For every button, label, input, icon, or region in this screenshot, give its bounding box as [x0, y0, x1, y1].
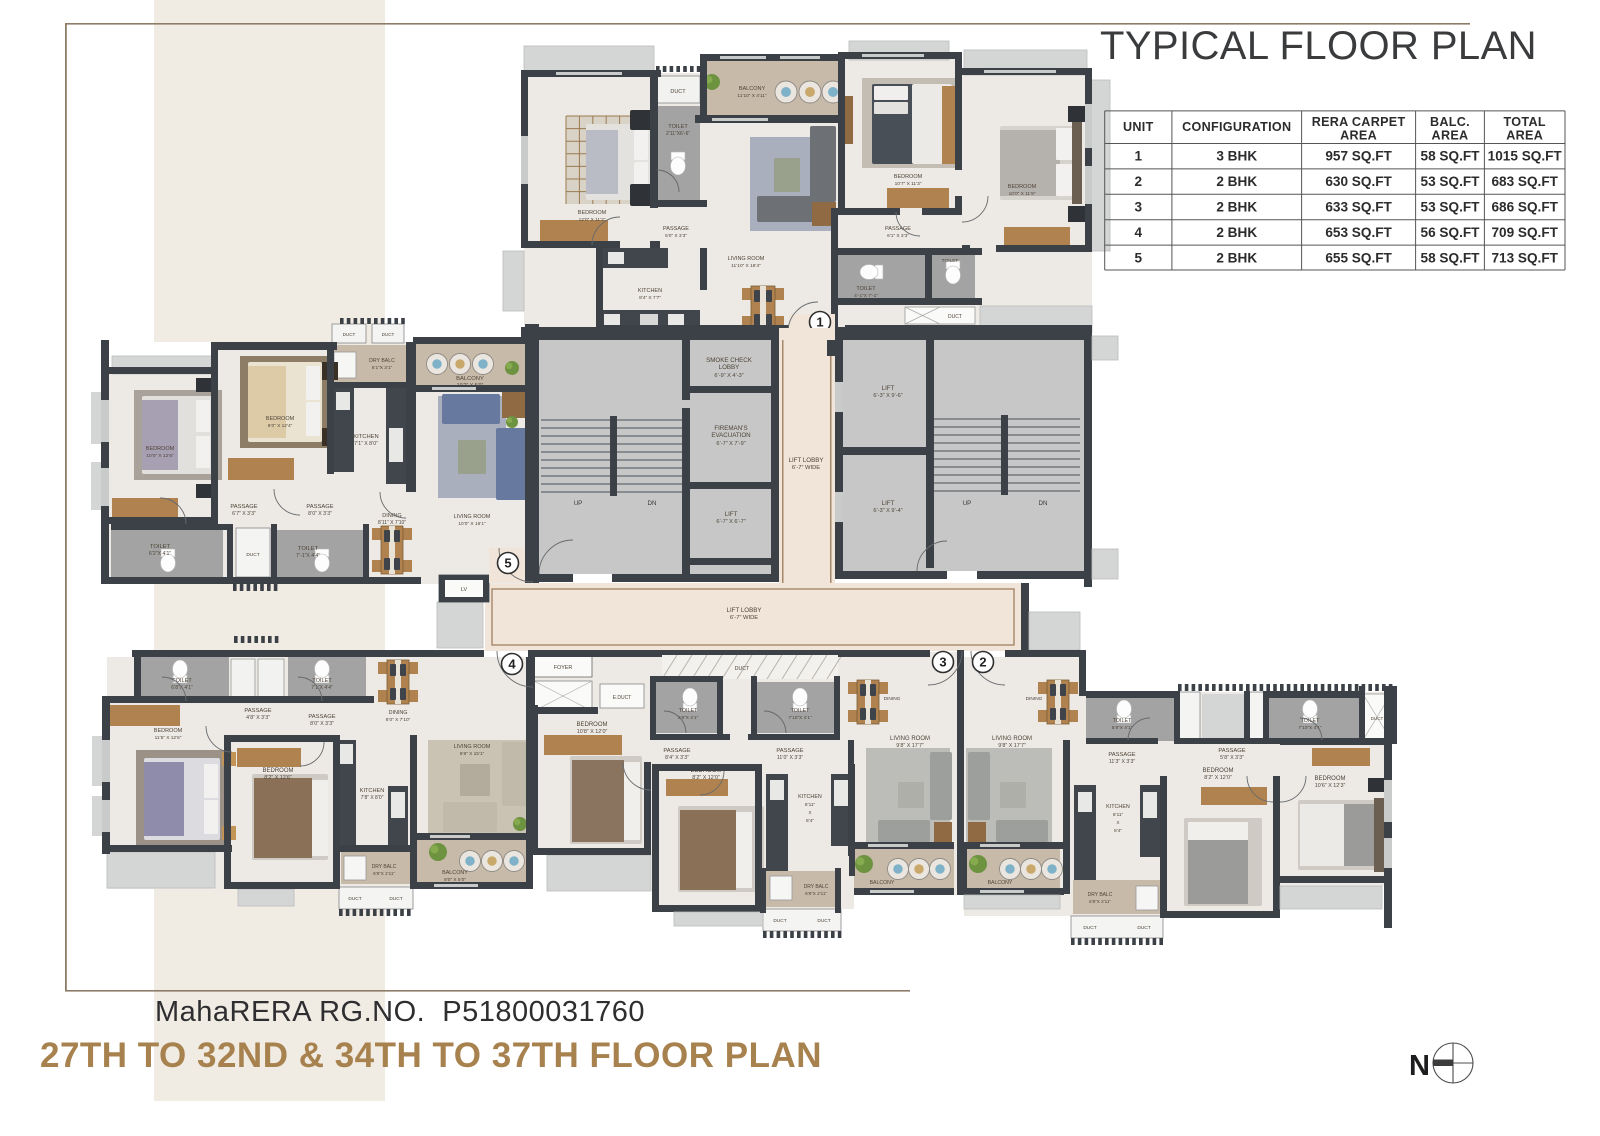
svg-text:633 SQ.FT: 633 SQ.FT: [1325, 200, 1392, 215]
svg-text:BALCONY: BALCONY: [870, 880, 895, 886]
svg-text:8’2” X 12’0”: 8’2” X 12’0”: [1204, 775, 1232, 781]
svg-text:DUCT: DUCT: [382, 332, 395, 337]
svg-text:686 SQ.FT: 686 SQ.FT: [1491, 200, 1558, 215]
svg-text:8’4” X 3’3”: 8’4” X 3’3”: [665, 755, 689, 761]
svg-text:DUCT: DUCT: [1137, 925, 1150, 931]
svg-text:DN: DN: [648, 500, 657, 507]
svg-text:N: N: [1409, 1050, 1430, 1082]
svg-text:6’1”X 3’1”: 6’1”X 3’1”: [372, 365, 393, 371]
svg-text:10’0” X 11’9”: 10’0” X 11’9”: [1009, 191, 1036, 197]
svg-text:DUCT: DUCT: [773, 918, 786, 924]
svg-text:LV: LV: [461, 587, 468, 593]
svg-text:1015 SQ.FT: 1015 SQ.FT: [1488, 149, 1563, 164]
svg-text:6’2”X 4’1”: 6’2”X 4’1”: [149, 551, 171, 557]
svg-text:9’8” X 15’1”: 9’8” X 15’1”: [460, 751, 485, 757]
svg-text:BEDROOM: BEDROOM: [1008, 184, 1037, 190]
svg-text:6’-7” WIDE: 6’-7” WIDE: [730, 615, 758, 621]
svg-text:8’0” X 7’10”: 8’0” X 7’10”: [386, 717, 411, 723]
svg-text:PASSAGE: PASSAGE: [1108, 752, 1135, 758]
svg-text:8’4”: 8’4”: [1114, 828, 1122, 834]
svg-text:BEDROOM: BEDROOM: [1314, 776, 1345, 782]
svg-text:8’11”: 8’11”: [1113, 812, 1124, 818]
svg-text:DUCT: DUCT: [348, 896, 361, 902]
svg-text:8’0” X 3’3”: 8’0” X 3’3”: [308, 511, 332, 517]
svg-text:5: 5: [504, 556, 511, 571]
svg-text:BALC.: BALC.: [1430, 115, 1470, 129]
svg-text:6’8”X 2’11”: 6’8”X 2’11”: [805, 891, 827, 896]
svg-text:5’8”X 4’1”: 5’8”X 4’1”: [678, 715, 699, 721]
svg-text:655 SQ.FT: 655 SQ.FT: [1325, 250, 1392, 265]
svg-text:PASSAGE: PASSAGE: [663, 226, 689, 232]
svg-text:DUCT: DUCT: [246, 552, 259, 558]
svg-text:X: X: [809, 810, 812, 815]
svg-text:BEDROOM: BEDROOM: [1202, 768, 1233, 774]
svg-text:BEDROOM: BEDROOM: [578, 210, 607, 216]
svg-text:709 SQ.FT: 709 SQ.FT: [1491, 225, 1558, 240]
svg-text:BEDROOM: BEDROOM: [894, 174, 923, 180]
svg-text:10’8” X 12’0”: 10’8” X 12’0”: [577, 729, 608, 735]
svg-text:3: 3: [1135, 200, 1143, 215]
svg-text:BEDROOM: BEDROOM: [146, 446, 175, 452]
svg-text:PASSAGE: PASSAGE: [230, 504, 257, 510]
svg-text:8’2” X 12’0”: 8’2” X 12’0”: [692, 775, 720, 781]
svg-text:TOILET: TOILET: [679, 708, 698, 714]
svg-text:6’-7” X 6’-7”: 6’-7” X 6’-7”: [716, 519, 745, 525]
svg-text:4: 4: [508, 657, 516, 672]
svg-text:DUCT: DUCT: [1083, 925, 1096, 931]
svg-text:EVACUATION: EVACUATION: [711, 432, 750, 439]
svg-text:BEDROOM: BEDROOM: [154, 728, 183, 734]
svg-text:9’8” X 17’7”: 9’8” X 17’7”: [896, 743, 924, 749]
svg-text:AREA: AREA: [1506, 129, 1543, 143]
svg-text:TOILET: TOILET: [668, 124, 688, 130]
svg-text:6’1” X 3’3”: 6’1” X 3’3”: [887, 233, 909, 239]
svg-text:7’10”X 4’1”: 7’10”X 4’1”: [788, 715, 812, 721]
svg-text:2 BHK: 2 BHK: [1216, 250, 1257, 265]
svg-text:AREA: AREA: [1340, 129, 1377, 143]
svg-text:BALCONY: BALCONY: [456, 376, 484, 382]
svg-text:KITCHEN: KITCHEN: [798, 794, 822, 800]
svg-text:12’0” X 11’2”: 12’0” X 11’2”: [579, 217, 606, 223]
svg-text:RERA CARPET: RERA CARPET: [1312, 115, 1406, 129]
svg-text:957 SQ.FT: 957 SQ.FT: [1325, 149, 1392, 164]
svg-text:6’-7” WIDE: 6’-7” WIDE: [792, 465, 820, 471]
svg-text:2 BHK: 2 BHK: [1216, 225, 1257, 240]
svg-text:DRY BALC: DRY BALC: [372, 864, 397, 870]
svg-text:6’8”X 2’11”: 6’8”X 2’11”: [373, 871, 395, 876]
svg-text:LIFT: LIFT: [725, 511, 738, 518]
svg-text:KITCHEN: KITCHEN: [638, 288, 662, 294]
svg-text:KITCHEN: KITCHEN: [360, 788, 385, 794]
svg-text:DUCT: DUCT: [343, 332, 356, 337]
svg-text:PASSAGE: PASSAGE: [308, 714, 335, 720]
svg-text:DUCT: DUCT: [735, 666, 750, 672]
svg-text:LIVING ROOM: LIVING ROOM: [890, 736, 930, 742]
svg-text:1: 1: [1135, 149, 1143, 164]
svg-text:9’8” X 17’7”: 9’8” X 17’7”: [998, 743, 1026, 749]
svg-text:TOILET: TOILET: [298, 546, 319, 552]
svg-text:X: X: [1117, 820, 1120, 825]
svg-text:LIFT LOBBY: LIFT LOBBY: [789, 457, 824, 464]
svg-text:630 SQ.FT: 630 SQ.FT: [1325, 174, 1392, 189]
svg-text:53 SQ.FT: 53 SQ.FT: [1421, 174, 1481, 189]
svg-text:5’8”X 4’1”: 5’8”X 4’1”: [1112, 725, 1133, 731]
svg-text:10’0” X 16’1”: 10’0” X 16’1”: [458, 521, 486, 527]
svg-text:58 SQ.FT: 58 SQ.FT: [1421, 250, 1481, 265]
svg-text:LIVING ROOM: LIVING ROOM: [728, 256, 765, 262]
svg-text:1: 1: [816, 315, 823, 330]
svg-text:6’-9” X 4’-3”: 6’-9” X 4’-3”: [714, 373, 743, 379]
svg-text:SMOKE CHECK: SMOKE CHECK: [706, 357, 753, 364]
svg-text:11’5” X 12’6”: 11’5” X 12’6”: [155, 735, 182, 741]
svg-text:PASSAGE: PASSAGE: [776, 748, 803, 754]
svg-text:TOILET: TOILET: [942, 258, 959, 264]
svg-text:DRY BALC: DRY BALC: [1088, 892, 1113, 898]
svg-text:TOTAL: TOTAL: [1504, 115, 1546, 129]
svg-text:10’0” X 12’6”: 10’0” X 12’6”: [146, 453, 174, 459]
svg-text:DUCT: DUCT: [948, 314, 962, 320]
svg-text:8’4” X 7’7”: 8’4” X 7’7”: [639, 295, 661, 301]
svg-text:6’7” X 3’3”: 6’7” X 3’3”: [232, 511, 256, 517]
svg-text:8’4”: 8’4”: [806, 818, 814, 824]
svg-text:DINING: DINING: [884, 696, 901, 702]
svg-text:DRY BALC: DRY BALC: [804, 884, 829, 890]
svg-text:PASSAGE: PASSAGE: [885, 226, 911, 232]
svg-text:KITCHEN: KITCHEN: [1106, 804, 1130, 810]
svg-text:DUCT: DUCT: [1371, 716, 1384, 721]
svg-text:LIVING ROOM: LIVING ROOM: [454, 744, 491, 750]
svg-text:E.DUCT: E.DUCT: [613, 695, 632, 701]
svg-text:5’0” X 3’3”: 5’0” X 3’3”: [665, 233, 687, 239]
svg-text:8’0” X 12’4”: 8’0” X 12’4”: [268, 423, 293, 429]
svg-text:UP: UP: [574, 500, 583, 507]
svg-text:DUCT: DUCT: [817, 918, 830, 924]
svg-text:10’6” X 12’3”: 10’6” X 12’3”: [1315, 783, 1346, 789]
svg-text:PASSAGE: PASSAGE: [663, 748, 690, 754]
svg-text:BALCONY: BALCONY: [988, 880, 1013, 886]
svg-text:2: 2: [979, 655, 986, 670]
svg-text:713 SQ.FT: 713 SQ.FT: [1491, 250, 1558, 265]
svg-text:KITCHEN: KITCHEN: [353, 434, 378, 440]
svg-text:58 SQ.FT: 58 SQ.FT: [1421, 149, 1481, 164]
svg-text:8’11”: 8’11”: [805, 802, 816, 808]
svg-text:BEDROOM: BEDROOM: [266, 416, 295, 422]
svg-text:LIVING ROOM: LIVING ROOM: [454, 514, 491, 520]
svg-text:683 SQ.FT: 683 SQ.FT: [1491, 174, 1558, 189]
svg-text:DN: DN: [1039, 500, 1048, 507]
svg-text:DINING: DINING: [389, 710, 408, 716]
svg-text:53 SQ.FT: 53 SQ.FT: [1421, 200, 1481, 215]
svg-text:DUCT: DUCT: [670, 89, 686, 95]
svg-text:653 SQ.FT: 653 SQ.FT: [1325, 225, 1392, 240]
svg-text:UNIT: UNIT: [1123, 120, 1154, 134]
svg-text:UP: UP: [963, 500, 972, 507]
svg-text:TOILET: TOILET: [312, 678, 332, 684]
svg-text:LIFT: LIFT: [882, 500, 895, 507]
svg-text:6’-3” X 9’-4”: 6’-3” X 9’-4”: [873, 508, 902, 514]
svg-text:LIFT: LIFT: [882, 385, 895, 392]
svg-text:PASSAGE: PASSAGE: [306, 504, 333, 510]
svg-text:6’-7” X 7’-9”: 6’-7” X 7’-9”: [716, 441, 745, 447]
svg-text:4’8” X 3’3”: 4’8” X 3’3”: [246, 715, 270, 721]
svg-text:11’3” X 3’3”: 11’3” X 3’3”: [1109, 759, 1135, 765]
svg-text:BALCONY: BALCONY: [739, 86, 766, 92]
svg-text:56 SQ.FT: 56 SQ.FT: [1421, 225, 1481, 240]
svg-text:7’8” X 8’0”: 7’8” X 8’0”: [361, 795, 384, 801]
svg-text:LOBBY: LOBBY: [719, 364, 740, 371]
svg-text:PASSAGE: PASSAGE: [1218, 748, 1245, 754]
svg-text:11’0” X 3’3”: 11’0” X 3’3”: [777, 755, 803, 761]
svg-text:3 BHK: 3 BHK: [1216, 149, 1257, 164]
svg-text:3: 3: [939, 655, 946, 670]
svg-text:6’-3” X 9’-6”: 6’-3” X 9’-6”: [873, 393, 902, 399]
svg-text:TOILET: TOILET: [791, 708, 810, 714]
svg-text:8’0” X 3’3”: 8’0” X 3’3”: [310, 721, 334, 727]
svg-text:BEDROOM: BEDROOM: [262, 768, 293, 774]
svg-text:7’-1”X 4’4”: 7’-1”X 4’4”: [296, 553, 320, 559]
svg-text:8’11” X 7’10”: 8’11” X 7’10”: [378, 520, 406, 526]
svg-text:FIREMAN’S: FIREMAN’S: [714, 425, 747, 432]
svg-text:11’10” X 18’4”: 11’10” X 18’4”: [731, 263, 761, 269]
svg-text:11’10” X 4’11”: 11’10” X 4’11”: [737, 93, 767, 99]
svg-text:7’1” X 8’0”: 7’1” X 8’0”: [354, 441, 378, 447]
svg-text:7’1”X 4’4”: 7’1”X 4’4”: [311, 685, 333, 691]
svg-text:PASSAGE: PASSAGE: [244, 708, 271, 714]
svg-text:2 BHK: 2 BHK: [1216, 200, 1257, 215]
svg-text:LIVING ROOM: LIVING ROOM: [992, 736, 1032, 742]
svg-text:BEDROOM: BEDROOM: [576, 722, 607, 728]
svg-text:FOYER: FOYER: [554, 665, 573, 671]
svg-text:CONFIGURATION: CONFIGURATION: [1182, 120, 1291, 134]
svg-text:6’8”X 2’11”: 6’8”X 2’11”: [1089, 899, 1111, 904]
svg-text:LIFT LOBBY: LIFT LOBBY: [727, 607, 762, 614]
svg-text:TOILET: TOILET: [856, 286, 876, 292]
svg-text:4: 4: [1135, 225, 1143, 240]
svg-text:2 BHK: 2 BHK: [1216, 174, 1257, 189]
svg-text:BALCONY: BALCONY: [442, 870, 468, 876]
svg-text:2’11”X6’-6”: 2’11”X6’-6”: [666, 131, 690, 137]
svg-text:5’8” X 3’3”: 5’8” X 3’3”: [1220, 755, 1244, 761]
svg-text:DINING: DINING: [1026, 696, 1043, 702]
svg-text:5: 5: [1135, 250, 1143, 265]
svg-text:2: 2: [1135, 174, 1143, 189]
svg-text:DRY BALC: DRY BALC: [369, 358, 395, 364]
svg-text:AREA: AREA: [1432, 129, 1469, 143]
svg-text:DUCT: DUCT: [389, 896, 402, 902]
svg-text:8’2” X 12’6”: 8’2” X 12’6”: [264, 775, 292, 781]
svg-text:10’7” X 11’3”: 10’7” X 11’3”: [895, 181, 922, 187]
svg-text:TOILET: TOILET: [1113, 718, 1132, 724]
svg-text:TOILET: TOILET: [150, 544, 171, 550]
